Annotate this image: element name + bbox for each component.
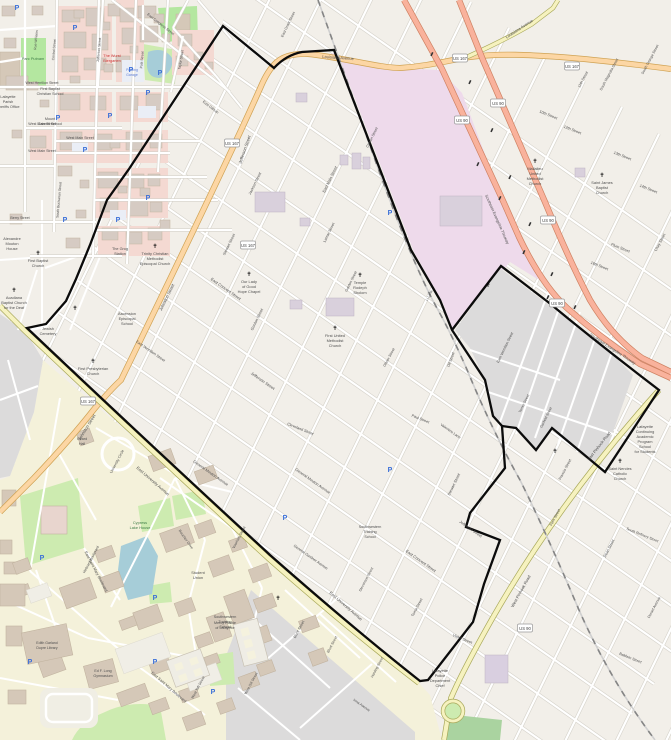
- svg-text:Hope Chapel: Hope Chapel: [238, 289, 261, 294]
- svg-text:Lafayette: Lafayette: [0, 95, 15, 99]
- svg-text:First Baptist: First Baptist: [40, 87, 59, 91]
- svg-text:P: P: [146, 195, 151, 202]
- svg-text:Training: Training: [218, 620, 231, 624]
- svg-text:P: P: [158, 70, 163, 77]
- svg-text:for Students: for Students: [635, 449, 656, 454]
- svg-text:Parc Putnam: Parc Putnam: [22, 56, 45, 61]
- svg-text:Sholom: Sholom: [353, 290, 366, 295]
- svg-text:Lake House: Lake House: [130, 525, 151, 530]
- svg-text:✝: ✝: [552, 448, 557, 455]
- svg-text:✝: ✝: [599, 172, 604, 179]
- svg-text:US 90: US 90: [456, 118, 468, 123]
- svg-text:School: School: [364, 535, 375, 539]
- svg-text:P: P: [83, 147, 88, 154]
- svg-text:✝: ✝: [152, 243, 157, 250]
- svg-text:Berry Street: Berry Street: [10, 216, 29, 220]
- svg-text:Episcopal Church: Episcopal Church: [140, 261, 171, 266]
- svg-text:West Main Street: West Main Street: [66, 136, 94, 140]
- svg-text:Cemetery: Cemetery: [40, 331, 57, 336]
- svg-text:✝: ✝: [357, 272, 362, 279]
- svg-text:✝: ✝: [90, 358, 95, 365]
- svg-text:Gymnasium: Gymnasium: [93, 674, 112, 678]
- svg-text:The Wurst: The Wurst: [103, 54, 121, 58]
- svg-text:P: P: [146, 90, 151, 97]
- svg-text:Hall: Hall: [79, 442, 86, 446]
- svg-text:US 167: US 167: [565, 64, 580, 69]
- svg-text:The Grog: The Grog: [112, 247, 128, 251]
- svg-text:Union: Union: [193, 575, 203, 580]
- svg-text:P: P: [56, 115, 61, 122]
- svg-text:Church: Church: [614, 476, 627, 481]
- svg-text:✝: ✝: [275, 595, 280, 602]
- svg-text:West Main Street: West Main Street: [28, 149, 56, 153]
- svg-text:P: P: [388, 210, 393, 217]
- svg-text:US 167: US 167: [241, 243, 256, 248]
- svg-text:US 167: US 167: [453, 56, 468, 61]
- svg-text:US 167: US 167: [81, 399, 96, 404]
- svg-text:✝: ✝: [246, 271, 251, 278]
- svg-text:Chief: Chief: [435, 683, 445, 688]
- svg-text:Carmel School: Carmel School: [38, 122, 62, 126]
- svg-text:House: House: [6, 246, 17, 251]
- svg-text:P: P: [153, 595, 158, 602]
- svg-text:Edith Garland: Edith Garland: [36, 641, 57, 645]
- svg-text:✝: ✝: [35, 250, 40, 257]
- svg-text:✝: ✝: [617, 458, 622, 465]
- svg-text:Church: Church: [596, 190, 609, 195]
- svg-text:P: P: [15, 5, 20, 12]
- svg-text:✝: ✝: [532, 158, 537, 165]
- svg-text:Church: Church: [329, 343, 342, 348]
- svg-text:Southwestern: Southwestern: [214, 615, 237, 619]
- svg-text:Mount: Mount: [45, 117, 55, 121]
- svg-text:✝: ✝: [332, 325, 337, 332]
- svg-text:✝: ✝: [485, 282, 490, 289]
- svg-text:US 90: US 90: [519, 626, 531, 631]
- svg-text:P: P: [116, 217, 121, 224]
- svg-text:P: P: [40, 555, 45, 562]
- svg-text:US 90: US 90: [492, 101, 504, 106]
- svg-text:US 90: US 90: [542, 218, 554, 223]
- svg-text:✝: ✝: [11, 287, 16, 294]
- svg-text:Parish: Parish: [3, 100, 13, 104]
- svg-text:P: P: [108, 113, 113, 120]
- svg-text:P: P: [153, 659, 158, 666]
- svg-text:P: P: [283, 515, 288, 522]
- svg-text:School: School: [121, 321, 133, 326]
- svg-text:✝: ✝: [72, 305, 77, 312]
- svg-text:Church: Church: [87, 371, 100, 376]
- svg-text:P: P: [28, 659, 33, 666]
- svg-text:Training: Training: [363, 530, 376, 534]
- svg-text:for the Deaf: for the Deaf: [4, 305, 25, 310]
- svg-text:US 167: US 167: [225, 141, 240, 146]
- svg-text:US 90: US 90: [551, 301, 563, 306]
- svg-text:Christian School: Christian School: [37, 92, 64, 96]
- svg-text:School: School: [219, 625, 230, 629]
- svg-text:P: P: [211, 689, 216, 696]
- svg-text:Dupre Library: Dupre Library: [36, 646, 57, 650]
- svg-text:P: P: [388, 467, 393, 474]
- svg-text:P: P: [73, 25, 78, 32]
- svg-text:West Herrilion Street: West Herrilion Street: [25, 81, 58, 85]
- svg-text:Ed F. Long: Ed F. Long: [94, 669, 111, 673]
- svg-text:Church: Church: [529, 181, 542, 186]
- svg-text:Sheriffs Office: Sheriffs Office: [0, 105, 20, 109]
- svg-text:Girard: Girard: [77, 437, 87, 441]
- svg-text:P: P: [63, 217, 68, 224]
- svg-text:Church: Church: [32, 263, 45, 268]
- svg-text:Station: Station: [114, 252, 126, 256]
- svg-text:Southwestern: Southwestern: [359, 525, 382, 529]
- svg-text:Biergarten: Biergarten: [103, 59, 121, 63]
- svg-text:P: P: [129, 67, 134, 74]
